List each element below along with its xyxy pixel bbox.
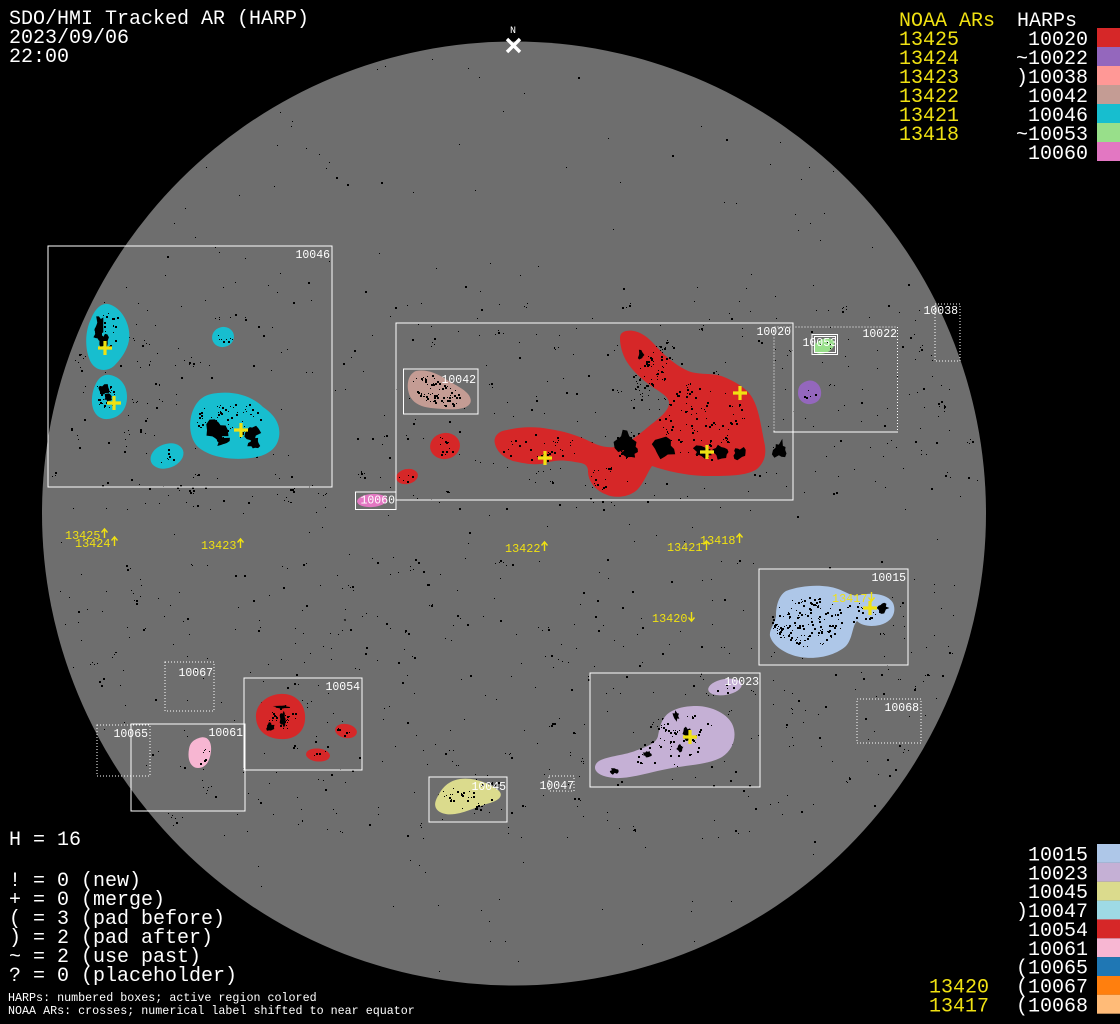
svg-text:13421: 13421 (667, 541, 702, 555)
svg-text:H = 16: H = 16 (9, 829, 81, 852)
svg-text:N: N (510, 26, 516, 37)
svg-text:10061: 10061 (208, 727, 243, 740)
svg-text:10047: 10047 (539, 780, 574, 793)
svg-text:10038: 10038 (923, 305, 958, 318)
svg-text:10060: 10060 (360, 495, 395, 508)
svg-text:10053: 10053 (802, 337, 837, 350)
svg-text:10015: 10015 (871, 572, 906, 585)
svg-text:13417: 13417 (929, 995, 989, 1018)
svg-text:13423: 13423 (201, 539, 236, 553)
svg-text:13418: 13418 (899, 124, 959, 147)
svg-text:HARPs: numbered boxes; active: HARPs: numbered boxes; active region col… (8, 991, 317, 1005)
svg-text:13417: 13417 (832, 592, 867, 606)
svg-text:10046: 10046 (295, 249, 330, 262)
svg-text:13424: 13424 (75, 537, 110, 551)
svg-text:10065: 10065 (113, 728, 148, 741)
svg-text:10042: 10042 (441, 374, 476, 387)
svg-text:10067: 10067 (178, 667, 213, 680)
svg-text:? = 0 (placeholder): ? = 0 (placeholder) (9, 965, 237, 988)
svg-text:13422: 13422 (505, 542, 540, 556)
svg-text:10022: 10022 (862, 328, 897, 341)
svg-text:(10068: (10068 (1016, 995, 1088, 1018)
svg-text:10023: 10023 (724, 676, 759, 689)
svg-text:13420: 13420 (652, 612, 687, 626)
svg-text:10045: 10045 (471, 781, 506, 794)
svg-text:NOAA ARs: crosses; numerical l: NOAA ARs: crosses; numerical label shift… (8, 1004, 415, 1018)
svg-text:10054: 10054 (325, 681, 360, 694)
svg-text:10060: 10060 (1028, 143, 1088, 166)
svg-text:13418: 13418 (700, 534, 735, 548)
svg-text:22:00: 22:00 (9, 46, 69, 69)
svg-text:10068: 10068 (884, 702, 919, 715)
